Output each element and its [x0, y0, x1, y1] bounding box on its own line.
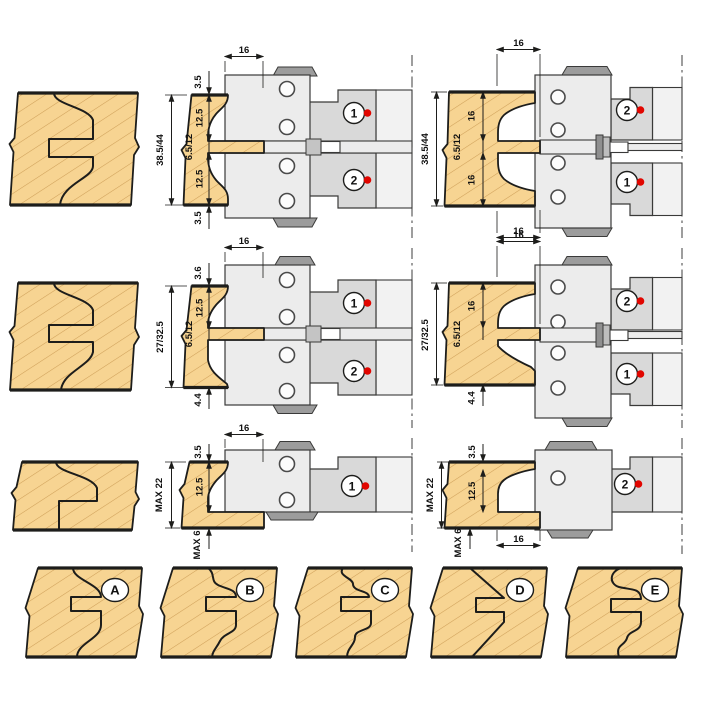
clamp-wedge-bottom	[273, 218, 317, 227]
upper-knife-plate	[225, 265, 310, 328]
cutter-number: 1	[349, 479, 356, 493]
red-dot	[364, 299, 372, 307]
red-dot	[637, 297, 645, 305]
dim-top-width: 16	[239, 236, 250, 247]
dim-overall: 38.5/44	[420, 132, 431, 164]
lower-cutter-number: 2	[351, 173, 358, 187]
red-dot	[362, 482, 370, 490]
dim-gap-bottom: 4.4	[467, 391, 478, 405]
dim-top-width: 16	[239, 45, 250, 56]
dim-gap-top: 3.5	[193, 75, 204, 89]
upper-cutter-number: 2	[624, 294, 631, 308]
dim-seg-upper: 12.5	[195, 477, 206, 496]
dim-bottom-width: 16	[513, 534, 524, 545]
clamp-wedge-top	[562, 67, 612, 76]
cutter-number: 2	[622, 477, 629, 491]
dim-gap-top: 3.5	[193, 445, 204, 459]
clamp-wedge-bottom	[547, 530, 593, 538]
dim-seg-upper: 12.5	[195, 298, 206, 317]
profile-letter: E	[651, 583, 660, 598]
dim-gap-bottom: 4.4	[193, 393, 204, 407]
dim-overall: 27/32.5	[420, 318, 431, 350]
profile-variant-a: A	[26, 568, 144, 657]
dim-seg-mid: 6.5/12	[452, 321, 463, 347]
dim-overall: 27/32.5	[155, 320, 166, 352]
dim-overall: 38.5/44	[155, 133, 166, 165]
upper-cutter-number: 1	[351, 296, 358, 310]
screw-hole	[551, 90, 565, 104]
arbor-shaft	[540, 140, 598, 154]
profile-variant-e: E	[566, 568, 684, 657]
profile-variant-c: C	[296, 568, 414, 657]
screw-hole	[280, 384, 295, 399]
upper-cutter-number: 1	[351, 106, 358, 120]
dim-seg-lower: 16	[467, 175, 478, 186]
screw-hole	[280, 273, 295, 288]
red-dot	[637, 178, 645, 186]
upper-knife-plate	[225, 75, 310, 141]
lower-cutter-number: 1	[624, 367, 631, 381]
dim-seg-upper: 16	[467, 301, 478, 312]
dim-seg-mid: 6.5/12	[452, 134, 463, 160]
red-dot	[635, 480, 643, 488]
red-dot	[364, 109, 372, 117]
clamp-wedge-top	[275, 257, 315, 266]
set1-joint-sample	[10, 93, 140, 205]
set3-joint-sample	[12, 462, 140, 530]
dim-gap-bottom: MAX 6	[192, 530, 203, 559]
dim-top-width: 16	[513, 230, 524, 241]
screw-hole	[280, 82, 295, 97]
knife-plate	[535, 450, 612, 530]
dim-gap-bottom: 3.5	[193, 211, 204, 225]
clamp-wedge-bottom	[266, 512, 318, 520]
profile-letter: B	[245, 583, 254, 598]
red-dot	[364, 176, 372, 184]
screw-hole	[551, 123, 565, 137]
screw-hole	[280, 120, 295, 135]
lower-cutter-number: 2	[351, 364, 358, 378]
dim-seg-lower: 12.5	[195, 169, 206, 188]
lower-knife-plate	[225, 340, 310, 405]
arbor-shaft	[540, 328, 598, 342]
screw-hole	[551, 190, 565, 204]
profile-letter: A	[110, 583, 120, 598]
red-dot	[637, 370, 645, 378]
screw-hole	[280, 457, 295, 472]
clamp-wedge-top	[275, 442, 315, 451]
screw-hole	[280, 348, 295, 363]
dim-overall: MAX 22	[154, 478, 165, 512]
screw-hole	[551, 346, 565, 360]
screw-hole	[551, 381, 565, 395]
dim-top-width: 16	[239, 423, 250, 434]
dim-gap-bottom: MAX 6	[453, 528, 464, 557]
clamp-wedge-bottom	[562, 228, 612, 237]
screw-hole	[551, 280, 565, 294]
clamp-wedge-bottom	[562, 418, 612, 427]
lower-knife-plate	[225, 153, 310, 218]
lower-cutter-number: 1	[624, 175, 631, 189]
dim-gap-top: 3.5	[467, 445, 478, 459]
dim-top-width: 16	[513, 38, 524, 49]
profile-variant-d: D	[431, 568, 549, 657]
clamp-wedge-top	[545, 442, 597, 451]
screw-hole	[551, 315, 565, 329]
screw-hole	[280, 310, 295, 325]
dim-seg-mid: 6.5/12	[184, 321, 195, 347]
dim-seg-upper: 16	[467, 111, 478, 122]
clamp-wedge-bottom	[273, 405, 317, 414]
red-dot	[364, 367, 372, 375]
screw-hole	[280, 493, 295, 508]
screw-hole	[280, 159, 295, 174]
dim-seg-mid: 6.5/12	[184, 134, 195, 160]
upper-cutter-number: 2	[624, 103, 631, 117]
dim-overall: MAX 22	[425, 478, 436, 512]
knife-plate	[225, 450, 310, 512]
set2-joint-sample	[10, 283, 140, 390]
profile-letter: D	[515, 583, 524, 598]
profile-variant-b: B	[161, 568, 279, 657]
dim-seg-upper: 12.5	[467, 481, 478, 500]
profile-letter: C	[380, 583, 390, 598]
cutterhead-catalog-diagram: 1 2 16 3.5 12.5 6.5/12 12.5 3.5 38.5/44	[0, 0, 720, 720]
screw-hole	[551, 156, 565, 170]
dim-gap-top: 3.6	[193, 266, 204, 279]
red-dot	[637, 106, 645, 114]
screw-hole	[551, 471, 565, 485]
dim-seg-upper: 12.5	[195, 108, 206, 127]
clamp-wedge-top	[562, 257, 612, 266]
screw-hole	[280, 194, 295, 209]
